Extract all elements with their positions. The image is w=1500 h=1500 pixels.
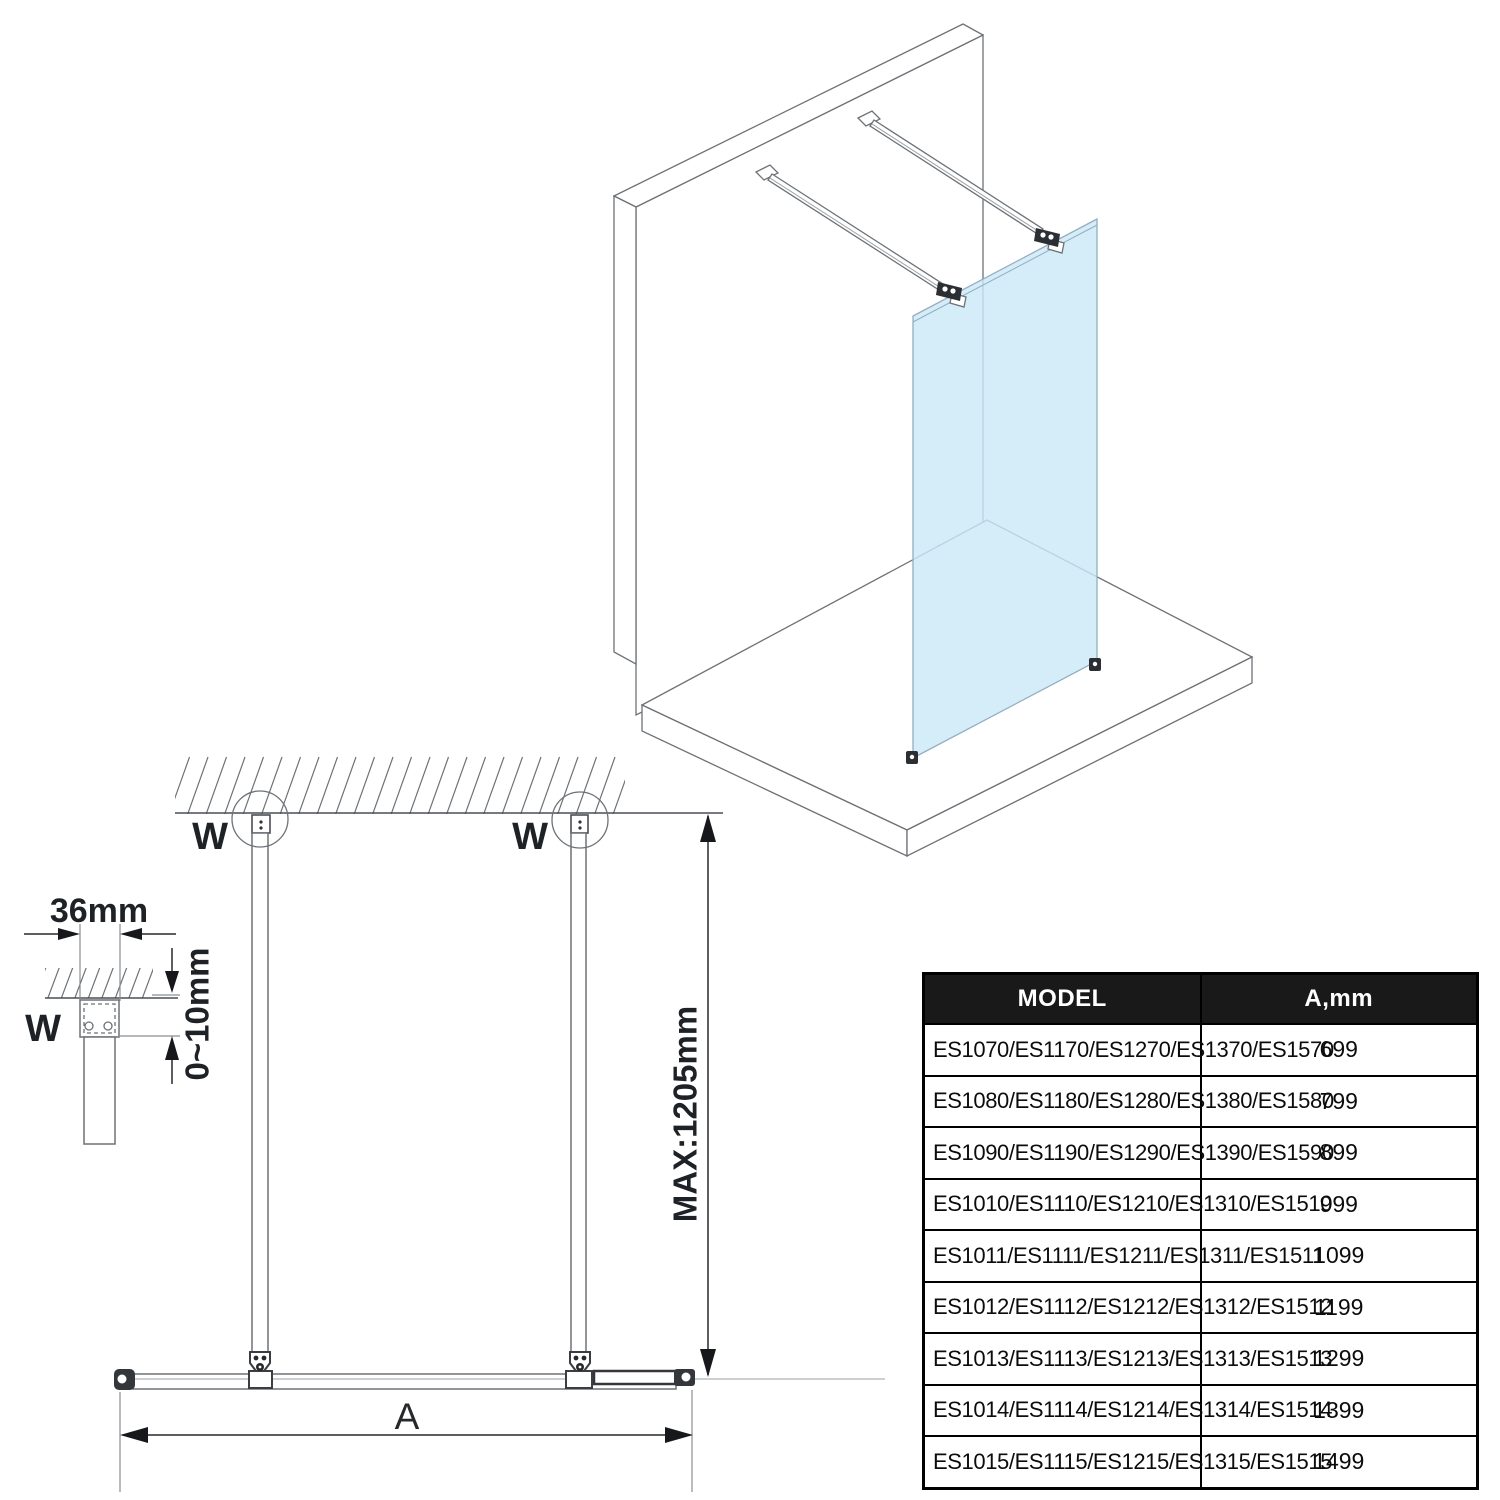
table-row: ES1013/ES1113/ES1213/ES1313/ES1513 1299 <box>924 1333 1478 1385</box>
table-row: ES1010/ES1110/ES1210/ES1310/ES1510 999 <box>924 1179 1478 1231</box>
hinge-pin-center <box>579 1366 582 1369</box>
model-cell: ES1010/ES1110/ES1210/ES1310/ES1510 <box>924 1179 1201 1231</box>
screw-icon <box>259 826 262 829</box>
wall-marker-right: W <box>512 816 548 858</box>
bracket-width-label: 36mm <box>50 892 148 930</box>
bracket-width-dimension <box>24 924 176 1001</box>
model-cell: ES1013/ES1113/ES1213/ES1313/ES1513 <box>924 1333 1201 1385</box>
table-row: ES1014/ES1114/ES1214/ES1314/ES1514 1399 <box>924 1385 1478 1437</box>
screw-icon <box>1048 234 1053 239</box>
glass-foot-right <box>1089 658 1101 671</box>
screw-icon <box>1093 662 1097 666</box>
model-cell: ES1011/ES1111/ES1211/ES1311/ES1511 <box>924 1230 1201 1282</box>
table-row: ES1080/ES1180/ES1280/ES1380/ES1580 799 <box>924 1076 1478 1128</box>
model-cell: ES1012/ES1112/ES1212/ES1312/ES1512 <box>924 1282 1201 1334</box>
screw-icon <box>118 1375 127 1384</box>
arrow-left-icon <box>120 1427 148 1443</box>
table-row: ES1090/ES1190/ES1290/ES1390/ES1590 899 <box>924 1127 1478 1179</box>
bracket-outline <box>80 1000 119 1037</box>
arrow-up-icon <box>165 1036 179 1060</box>
table-row: ES1070/ES1170/ES1270/ES1370/ES1570 699 <box>924 1024 1478 1076</box>
table-row: ES1011/ES1111/ES1211/ES1311/ES1511 1099 <box>924 1230 1478 1282</box>
column-header-a-mm: A,mm <box>1201 974 1478 1025</box>
bar-section <box>84 1037 115 1144</box>
model-spec-table: MODEL A,mm ES1070/ES1170/ES1270/ES1370/E… <box>922 972 1479 1490</box>
table-header-row: MODEL A,mm <box>924 974 1478 1025</box>
screw-icon <box>582 1356 587 1361</box>
screw-icon <box>950 288 955 293</box>
arrow-up-icon <box>700 814 716 842</box>
ceiling-hatch <box>150 757 652 816</box>
model-cell: ES1080/ES1180/ES1280/ES1380/ES1580 <box>924 1076 1201 1128</box>
arrow-down-icon <box>165 971 179 993</box>
wall-marker-detail: W <box>25 1008 61 1050</box>
arrow-down-icon <box>700 1349 716 1377</box>
installation-diagram-page: 36mm 0~10mm W W W MAX:1205mm A MODEL A,m… <box>0 0 1500 1500</box>
ceiling-bracket-left <box>252 815 270 833</box>
hinge-pin-center <box>259 1366 262 1369</box>
arrow-right-icon <box>665 1427 693 1443</box>
column-header-model: MODEL <box>924 974 1201 1025</box>
support-bar-left-2d <box>252 833 268 1352</box>
isometric-view <box>614 24 1252 856</box>
screw-icon <box>254 1356 259 1361</box>
wall-hatch-detail <box>34 967 168 999</box>
glass-mount-block-right <box>566 1371 592 1388</box>
glass-foot-left <box>906 751 918 764</box>
ceiling-bracket-right <box>571 815 588 833</box>
table-row: ES1012/ES1112/ES1212/ES1312/ES1512 1199 <box>924 1282 1478 1334</box>
screw-icon <box>574 1356 579 1361</box>
width-dim-label: A <box>395 1396 420 1437</box>
gap-dimension <box>119 948 180 1084</box>
stabilizer-bar-2d <box>594 1371 676 1384</box>
clamp-body <box>1034 228 1060 247</box>
support-bar-right-2d <box>571 833 586 1352</box>
screw-icon <box>942 286 947 291</box>
glass-mount-block-left <box>249 1371 272 1388</box>
wall-left-face <box>614 196 636 664</box>
gap-range-label: 0~10mm <box>179 947 216 1080</box>
model-cell: ES1014/ES1114/ES1214/ES1314/ES1514 <box>924 1385 1201 1437</box>
screw-icon <box>910 755 914 759</box>
screw-icon <box>682 1373 691 1382</box>
table-row: ES1015/ES1115/ES1215/ES1315/ES1515 1499 <box>924 1436 1478 1488</box>
screw-icon <box>578 826 581 829</box>
max-height-label: MAX:1205mm <box>667 1006 704 1222</box>
model-cell: ES1070/ES1170/ES1270/ES1370/ES1570 <box>924 1024 1201 1076</box>
screw-icon <box>262 1356 267 1361</box>
wall-marker-left: W <box>192 816 228 858</box>
model-cell: ES1015/ES1115/ES1215/ES1315/ES1515 <box>924 1436 1201 1488</box>
front-view <box>114 757 885 1492</box>
model-cell: ES1090/ES1190/ES1290/ES1390/ES1590 <box>924 1127 1201 1179</box>
screw-icon <box>259 820 262 823</box>
screw-icon <box>578 820 581 823</box>
screw-icon <box>1040 232 1045 237</box>
